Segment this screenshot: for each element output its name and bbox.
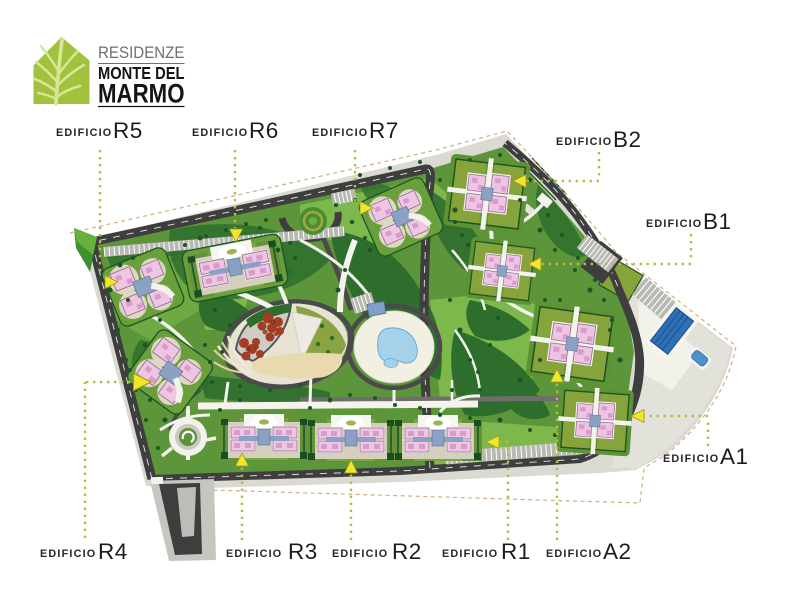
- svg-text:A2: A2: [603, 539, 632, 564]
- svg-text:EDIFICIO: EDIFICIO: [40, 548, 96, 560]
- svg-text:R1: R1: [501, 539, 531, 564]
- svg-text:R2: R2: [392, 539, 422, 564]
- svg-text:R7: R7: [369, 118, 399, 143]
- svg-text:EDIFICIO: EDIFICIO: [56, 127, 112, 139]
- svg-text:B1: B1: [703, 209, 732, 234]
- svg-text:EDIFICIO: EDIFICIO: [442, 548, 498, 560]
- svg-text:EDIFICIO: EDIFICIO: [646, 218, 702, 230]
- svg-text:RESIDENZE: RESIDENZE: [98, 44, 185, 62]
- svg-text:EDIFICIO: EDIFICIO: [663, 453, 719, 465]
- svg-text:EDIFICIO: EDIFICIO: [312, 127, 368, 139]
- svg-text:R4: R4: [98, 539, 128, 564]
- svg-text:B2: B2: [613, 127, 642, 152]
- svg-text:R5: R5: [113, 118, 143, 143]
- svg-text:EDIFICIO: EDIFICIO: [226, 548, 282, 560]
- svg-text:A1: A1: [720, 444, 749, 469]
- svg-text:R3: R3: [288, 539, 318, 564]
- svg-text:EDIFICIO: EDIFICIO: [546, 548, 602, 560]
- svg-text:MARMO: MARMO: [98, 79, 185, 109]
- svg-text:EDIFICIO: EDIFICIO: [192, 127, 248, 139]
- svg-text:EDIFICIO: EDIFICIO: [332, 548, 388, 560]
- svg-text:R6: R6: [249, 118, 279, 143]
- svg-text:EDIFICIO: EDIFICIO: [556, 136, 612, 148]
